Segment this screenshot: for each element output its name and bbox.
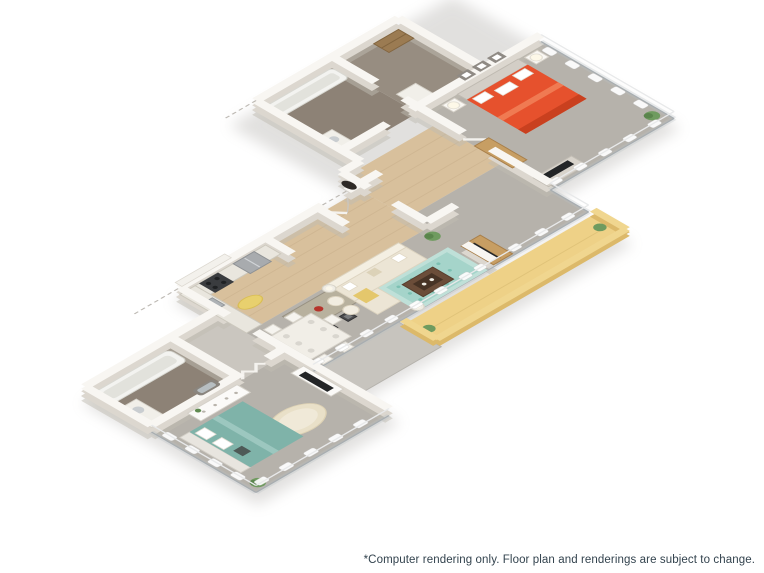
- disclaimer-caption: *Computer rendering only. Floor plan and…: [364, 554, 755, 566]
- floor-plan-rendering: [0, 0, 764, 573]
- floor-plan-page: *Computer rendering only. Floor plan and…: [0, 0, 764, 573]
